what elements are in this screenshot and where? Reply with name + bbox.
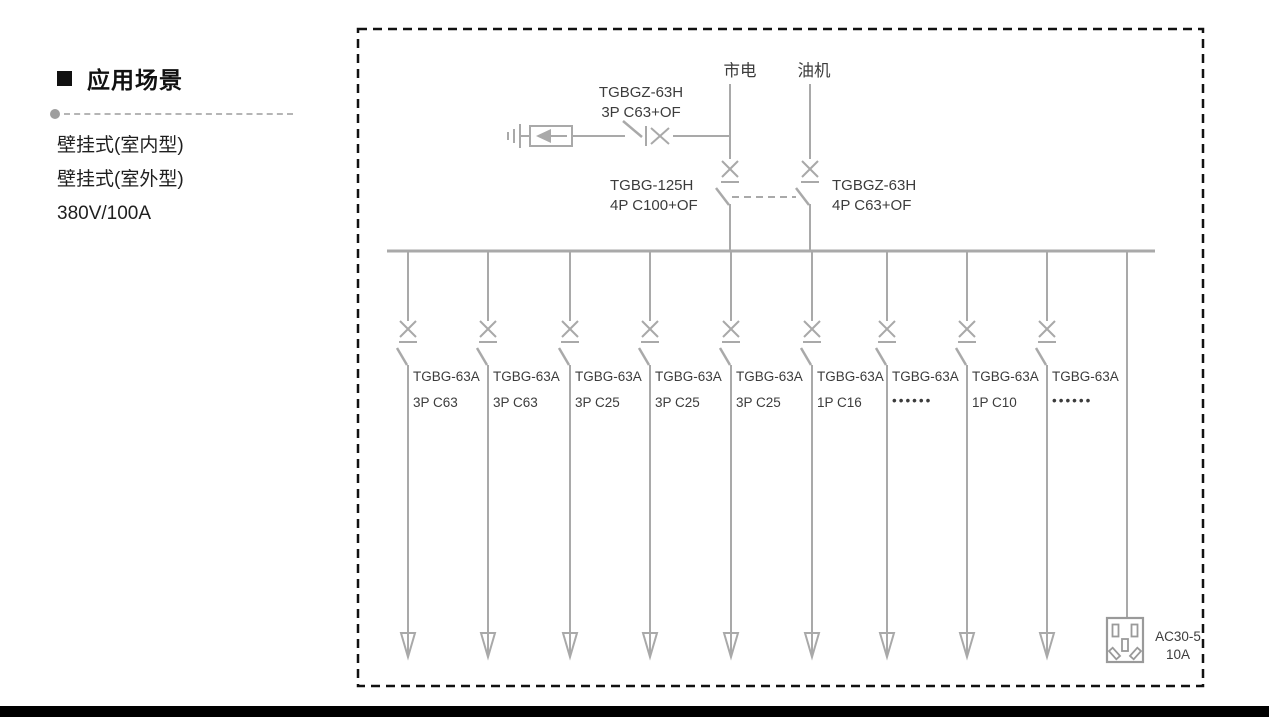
socket-model: AC30-5 [1155,629,1201,644]
branch-spec: 3P C63 [413,395,458,410]
ground-icon [508,124,520,148]
spd-breaker-spec: 3P C63+OF [601,104,680,121]
branch-spec: 1P C10 [972,395,1017,410]
generator-breaker-model: TGBGZ-63H [832,177,916,194]
branch-spec: 3P C25 [575,395,620,410]
spd-breaker-icon [623,121,669,146]
feeder-branch-3: TGBG-63A 3P C25 [559,252,642,657]
feeder-branch-9: TGBG-63A •••••• [1036,252,1119,657]
socket-branch: AC30-5 10A [1107,252,1201,662]
mains-breaker-spec: 4P C100+OF [610,197,698,214]
socket-icon [1107,618,1143,662]
generator-breaker-spec: 4P C63+OF [832,197,911,214]
feeder-branch-5: TGBG-63A 3P C25 [720,252,803,657]
branch-model: TGBG-63A [972,369,1039,384]
page: 应用场景 壁挂式(室内型) 壁挂式(室外型) 380V/100A 市电 油机 [0,0,1269,721]
branch-spec: 1P C16 [817,395,862,410]
mains-source-label: 市电 [724,61,757,80]
spd-breaker-model: TGBGZ-63H [599,84,683,101]
branch-model: TGBG-63A [493,369,560,384]
branch-model: TGBG-63A [817,369,884,384]
feeder-branch-1: TGBG-63A 3P C63 [397,252,480,657]
feeder-branch-2: TGBG-63A 3P C63 [477,252,560,657]
generator-source-label: 油机 [798,61,832,80]
diagram-dashed-border [358,29,1203,686]
branch-spec-ellipsis: •••••• [1052,393,1092,408]
bottom-rule [0,706,1269,717]
branch-spec-ellipsis: •••••• [892,393,932,408]
single-line-diagram: 市电 油机 [0,0,1269,721]
mains-incomer-breaker-icon [716,84,739,252]
feeder-branch-7: TGBG-63A •••••• [876,252,959,657]
generator-incomer-breaker-icon [796,84,819,252]
surge-arrester-icon [530,126,572,146]
branch-model: TGBG-63A [413,369,480,384]
branch-model: TGBG-63A [892,369,959,384]
feeder-branch-4: TGBG-63A 3P C25 [639,252,722,657]
feeder-branch-6: TGBG-63A 1P C16 [801,252,884,657]
branch-spec: 3P C63 [493,395,538,410]
spd-branch [508,121,730,148]
branch-model: TGBG-63A [655,369,722,384]
branch-spec: 3P C25 [736,395,781,410]
feeder-branch-8: TGBG-63A 1P C10 [956,252,1039,657]
mains-breaker-model: TGBG-125H [610,177,693,194]
branch-model: TGBG-63A [736,369,803,384]
socket-rating: 10A [1166,647,1190,662]
branch-model: TGBG-63A [1052,369,1119,384]
branch-model: TGBG-63A [575,369,642,384]
branch-spec: 3P C25 [655,395,700,410]
